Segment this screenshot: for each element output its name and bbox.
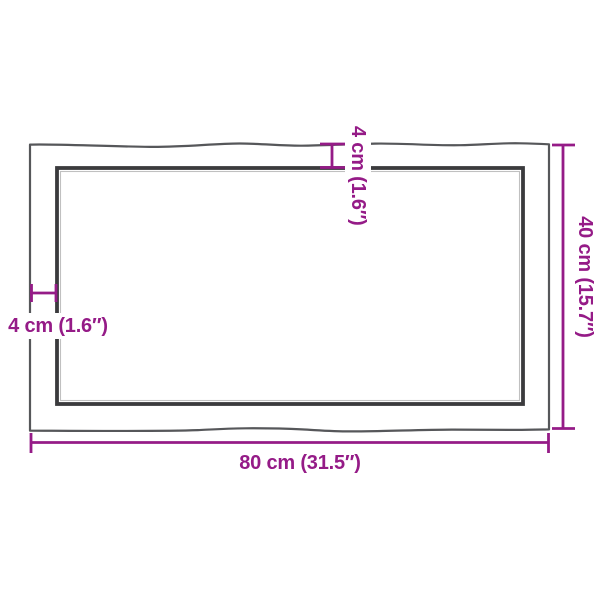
tabletop-line-drawing [0, 0, 600, 600]
thickness-left-label: 4 cm (1.6″) [6, 313, 110, 339]
thickness-top-label: 4 cm (1.6″) [345, 124, 371, 230]
dimension-lines [30, 143, 575, 453]
width-dimension-label: 80 cm (31.5″) [234, 450, 366, 476]
tabletop-live-edge-outline [30, 143, 549, 431]
inner-edge-highlight [61, 172, 520, 401]
product-dimension-diagram: 4 cm (1.6″) 40 cm (15.7″) 4 cm (1.6″) 80… [0, 0, 600, 600]
tabletop-inner-edge [57, 168, 523, 404]
height-dimension-label: 40 cm (15.7″) [572, 206, 598, 348]
